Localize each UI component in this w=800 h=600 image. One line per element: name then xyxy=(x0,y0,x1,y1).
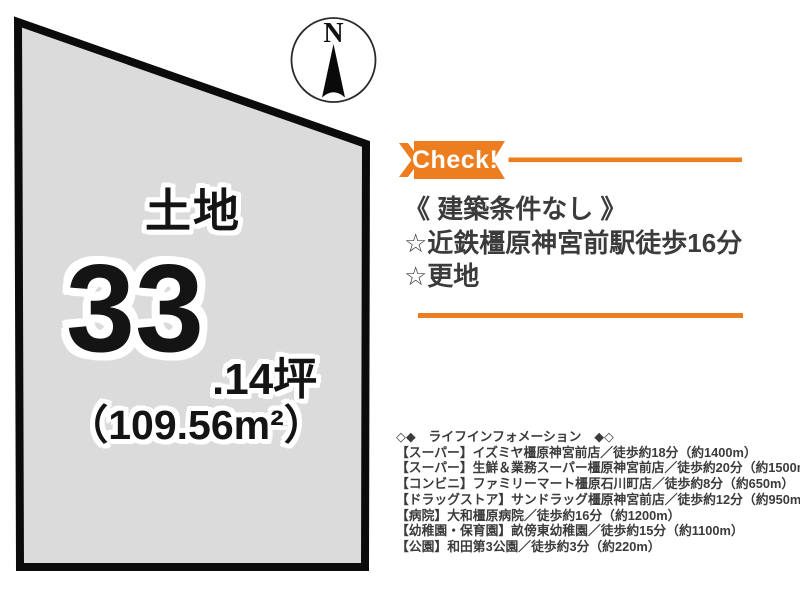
check-banner-label: Check! xyxy=(412,144,494,176)
highlight-station-walk: ☆近鉄橿原神宮前駅徒歩16分 xyxy=(404,227,742,261)
highlight-no-building-conditions: 《 建築条件なし 》 xyxy=(404,193,742,227)
land-area-tsubo-value: 33 xyxy=(66,247,204,371)
highlights-block: 《 建築条件なし 》 ☆近鉄橿原神宮前駅徒歩16分 ☆更地 xyxy=(404,193,742,294)
life-information-header: ◇◆ ライフインフォメーション ◆◇ xyxy=(396,429,800,445)
life-information-item: 【スーパー】イズミヤ橿原神宮前店／徒歩約18分（約1400m） xyxy=(396,445,800,461)
life-information-block: ◇◆ ライフインフォメーション ◆◇ 【スーパー】イズミヤ橿原神宮前店／徒歩約1… xyxy=(396,429,800,555)
land-title: 土地 xyxy=(145,188,241,234)
life-information-item: 【コンビニ】ファミリーマート橿原石川町店／徒歩約8分（約650m） xyxy=(396,476,800,492)
life-information-item: 【ドラッグストア】サンドラッグ橿原神宮前店／徒歩約12分（約950m） xyxy=(396,492,800,508)
highlight-vacant-land: ☆更地 xyxy=(404,260,742,294)
listing-image: { "colors": { "accent_orange": "#ED7E1F"… xyxy=(0,0,800,600)
life-information-item: 【公園】和田第3公園／徒歩約3分（約220m） xyxy=(396,539,800,555)
compass: N xyxy=(292,18,376,102)
life-information-item: 【幼稚園・保育園】畝傍東幼稚園／徒歩約15分（約1100m） xyxy=(396,523,800,539)
land-area-tsubo-unit: .14坪 xyxy=(212,358,317,402)
check-banner-line xyxy=(509,158,743,163)
life-information-item: 【スーパー】生鮮＆業務スーパー橿原神宮前店／徒歩約20分（約1500m） xyxy=(396,460,800,476)
land-area-sqm: （109.56m²） xyxy=(67,405,325,446)
highlight-divider-line xyxy=(418,313,743,318)
life-information-item: 【病院】大和橿原病院／徒歩約16分（約1200m） xyxy=(396,508,800,524)
